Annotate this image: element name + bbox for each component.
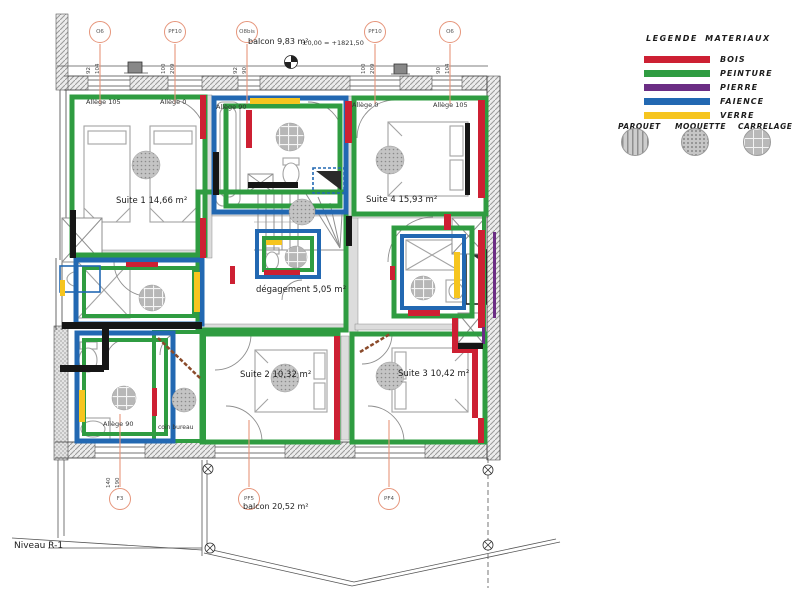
elevation-label: ±0,00 = +1821,50: [302, 40, 364, 47]
room-label-suite3: Suite 3 10,42 m²: [398, 370, 469, 379]
carrelage-symbol: [112, 386, 136, 410]
legend: LEGENDE MATERIAUX BOIS PEINTURE PIERRE F…: [618, 30, 800, 162]
moquette-symbol: [172, 388, 196, 412]
floor-plan-page: O6 PF10 O8bis PF10 O6 F3 PF5 PF4 92 104 …: [0, 0, 800, 592]
legend-title: LEGENDE MATERIAUX: [646, 34, 771, 43]
window-dim: 104: [446, 48, 452, 74]
allege-label: Allège 0: [352, 102, 378, 109]
window-dim: 140: [107, 462, 113, 488]
window-dim: 209: [171, 48, 177, 74]
window-dim: 104: [96, 48, 102, 74]
parquet-swatch-icon: [621, 128, 649, 156]
window-dim: 90: [243, 48, 249, 74]
legend-label-verre: VERRE: [720, 111, 754, 120]
moquette-swatch-icon: [681, 128, 709, 156]
window-dim: 92: [87, 48, 93, 74]
carrelage-symbol: [411, 276, 435, 300]
window-marker: PF10: [364, 21, 386, 43]
window-marker: PF10: [164, 21, 186, 43]
window-dim: 100: [362, 48, 368, 74]
allege-label: Allège 0: [160, 99, 186, 106]
legend-label-faience: FAIENCE: [720, 97, 764, 106]
allege-label: Allège 105: [86, 99, 121, 106]
window-marker: PF4: [378, 488, 400, 510]
balcony-bottom-label: balcon 20,52 m²: [243, 503, 309, 511]
room-label-degagement: dégagement 5,05 m²: [256, 286, 346, 295]
room-label-suite4: Suite 4 15,93 m²: [366, 196, 437, 205]
legend-swatch-verre: [644, 112, 710, 119]
legend-label-pierre: PIERRE: [720, 83, 758, 92]
window-dim: 90: [437, 48, 443, 74]
carrelage-swatch-icon: [743, 128, 771, 156]
legend-swatch-pierre: [644, 84, 710, 91]
window-dim: 92: [234, 48, 240, 74]
moquette-symbol: [376, 146, 404, 174]
carrelage-symbol: [285, 246, 307, 268]
bench-wedge: [316, 171, 341, 190]
legend-label-peinture: PEINTURE: [720, 69, 773, 78]
allege-label: Allège 90: [103, 421, 134, 428]
legend-swatch-faience: [644, 98, 710, 105]
allege-label: Allège 105: [433, 102, 468, 109]
room-label-suite2: Suite 2 10,32 m²: [240, 371, 311, 380]
moquette-symbol: [289, 199, 315, 225]
window-dim: 209: [371, 48, 377, 74]
legend-label-bois: BOIS: [720, 55, 746, 64]
carrelage-symbol: [139, 285, 165, 311]
room-label-coin-bureau: coin bureau: [158, 425, 193, 431]
balcony-top-label: balcon 9,83 m²: [248, 38, 308, 46]
window-marker: O6: [439, 21, 461, 43]
allege-label: Allège 90: [216, 104, 247, 111]
carrelage-symbol: [276, 123, 304, 151]
legend-swatch-bois: [644, 56, 710, 63]
window-marker: F3: [109, 488, 131, 510]
window-dim: 190: [116, 462, 122, 488]
moquette-symbol: [132, 151, 160, 179]
room-label-suite1: Suite 1 14,66 m²: [116, 197, 187, 206]
legend-swatch-peinture: [644, 70, 710, 77]
window-marker: O6: [89, 21, 111, 43]
level-label: Niveau R-1: [14, 542, 63, 551]
window-dim: 100: [162, 48, 168, 74]
